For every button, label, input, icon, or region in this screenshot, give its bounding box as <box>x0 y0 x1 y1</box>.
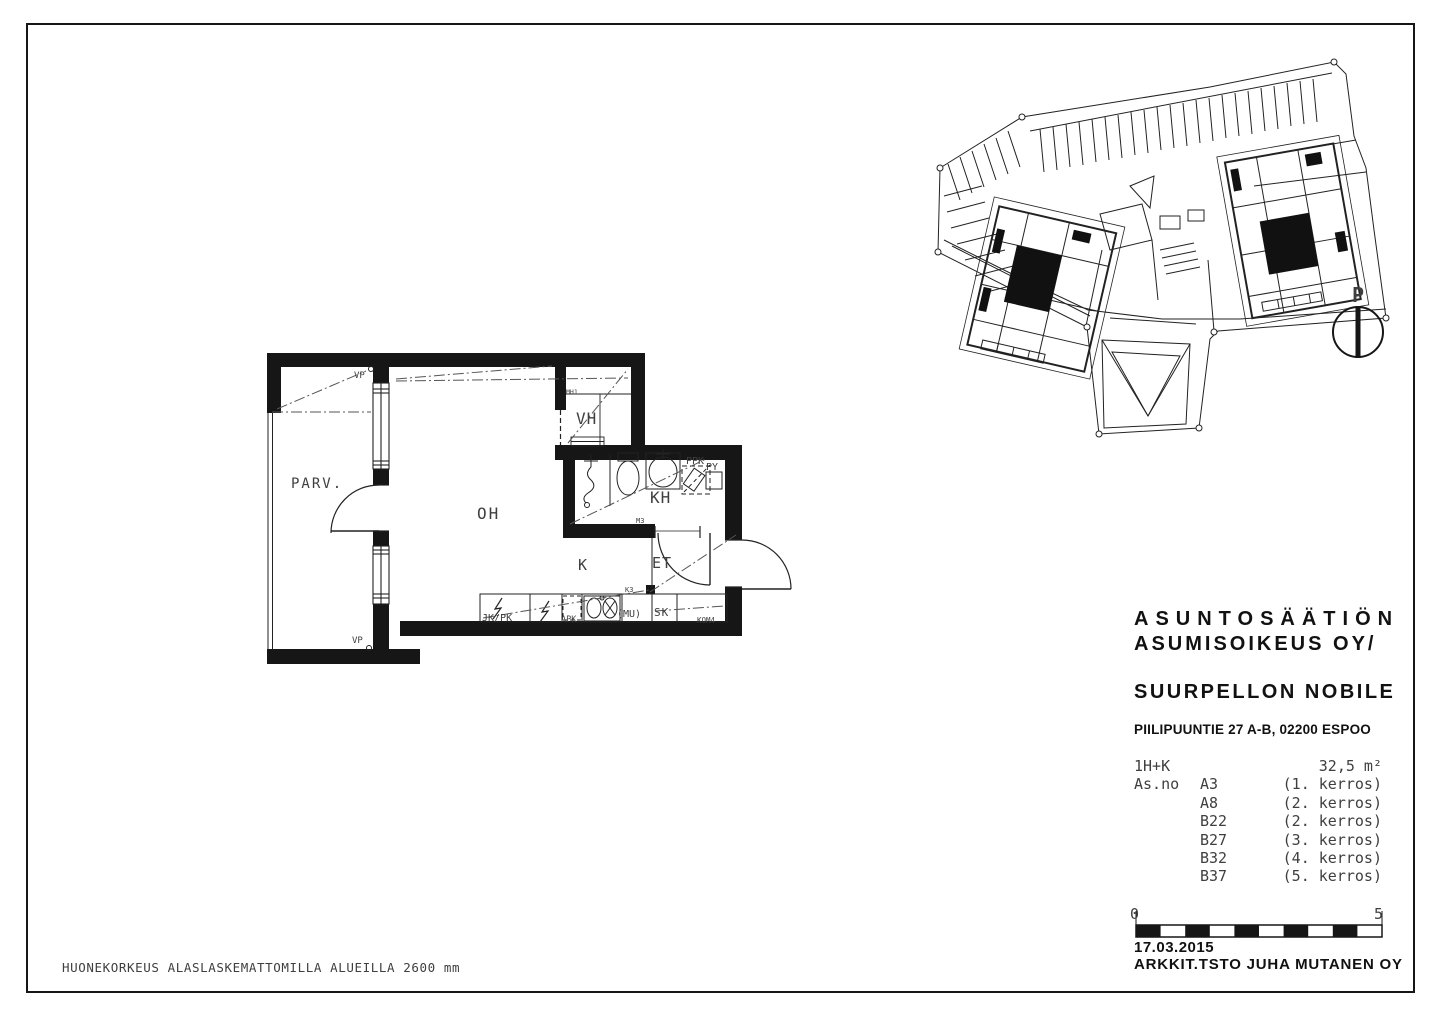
north-arrow: P <box>1333 283 1383 358</box>
floor-plan: PARV. OH VH KH K ET VP VP MH1 M3 K3 JK/P… <box>267 353 791 664</box>
unit-type-row: 1H+K 32,5 m² <box>1134 757 1382 775</box>
mark-apk: APK <box>561 615 577 625</box>
room-label-living: OH <box>477 504 500 523</box>
room-labels: PARV. OH VH KH K ET <box>291 409 672 574</box>
apartment-no: B32 <box>1200 849 1227 867</box>
mark-m3: M3 <box>636 517 644 525</box>
mark-mu: (MU) <box>617 609 641 620</box>
apartment-no: A8 <box>1200 794 1218 812</box>
apartment-floor: (2. kerros) <box>1283 794 1382 812</box>
apartment-no: B37 <box>1200 867 1227 885</box>
north-label: P <box>1352 283 1364 307</box>
apartment-floor: (4. kerros) <box>1283 849 1382 867</box>
apartment-row: A8 (2. kerros) <box>1134 794 1382 812</box>
ceiling-height-note: HUONEKORKEUS ALASLASKEMATTOMILLA ALUEILL… <box>62 960 460 975</box>
mark-vp-bottom: VP <box>352 636 363 646</box>
apartment-floor: (5. kerros) <box>1283 867 1382 885</box>
owner-line-2: ASUMISOIKEUS OY/ <box>1134 633 1376 656</box>
room-label-balcony: PARV. <box>291 476 343 492</box>
balcony-railing <box>268 413 273 650</box>
as-no-label: As.no <box>1134 775 1179 793</box>
door-symbols <box>331 410 791 589</box>
mark-sk: SK <box>654 606 669 619</box>
apartment-floor: (1. kerros) <box>1283 775 1382 793</box>
apartment-row: B22 (2. kerros) <box>1134 812 1382 830</box>
py-cabinet <box>706 472 722 489</box>
shower-icon <box>584 455 610 508</box>
mark-kom4: KOM4 <box>697 616 716 625</box>
site-plan <box>935 59 1389 437</box>
project-address: PIILIPUUNTIE 27 A-B, 02200 ESPOO <box>1134 722 1371 737</box>
room-label-entry: ET <box>652 554 672 572</box>
room-label-bathroom: KH <box>650 488 671 507</box>
owner-line-1: ASUNTOSÄÄTIÖN <box>1134 608 1399 631</box>
kitchen-counter <box>480 594 727 622</box>
drawing-sheet: P <box>0 0 1440 1017</box>
survey-points <box>935 59 1389 437</box>
mark-vp-top: VP <box>354 371 365 381</box>
unit-area: 32,5 m² <box>1319 757 1382 775</box>
scale-end-label: 5 <box>1374 905 1383 923</box>
apartment-no: A3 <box>1200 775 1218 793</box>
architect-name: ARKKIT.TSTO JUHA MUTANEN OY <box>1134 956 1403 973</box>
scale-start-label: 0 <box>1130 905 1139 923</box>
mark-ppk: PPK <box>686 456 704 467</box>
apartment-list: 1H+K 32,5 m² As.no A3 (1. kerros) A8 (2.… <box>1134 757 1382 886</box>
site-building-a <box>959 197 1125 379</box>
code-labels: VP VP MH1 M3 K3 JK/PK APK (MU) SK KOM4 P… <box>352 371 718 646</box>
unit-type: 1H+K <box>1134 757 1170 775</box>
site-lower-court <box>1102 340 1190 428</box>
window-symbols <box>373 383 389 604</box>
mark-k3: K3 <box>625 586 633 594</box>
room-label-kitchen: K <box>578 556 587 574</box>
apartment-floor: (3. kerros) <box>1283 831 1382 849</box>
apartment-no: B27 <box>1200 831 1227 849</box>
apartment-row: B32 (4. kerros) <box>1134 849 1382 867</box>
kitchen-sink-icon <box>584 596 620 621</box>
apartment-row: As.no A3 (1. kerros) <box>1134 775 1382 793</box>
apartment-row: B27 (3. kerros) <box>1134 831 1382 849</box>
apartment-row: B37 (5. kerros) <box>1134 867 1382 885</box>
room-label-closet: VH <box>576 409 597 428</box>
mark-jkpk: JK/PK <box>482 613 512 624</box>
scale-bar: 0 5 <box>1130 905 1383 937</box>
parking-ticks <box>1040 79 1317 172</box>
mark-py: PY <box>706 462 718 473</box>
apartment-floor: (2. kerros) <box>1283 812 1382 830</box>
apartment-no: B22 <box>1200 812 1227 830</box>
site-building-b <box>1217 135 1369 326</box>
site-courtyard <box>1086 176 1214 331</box>
site-boundary <box>938 62 1386 434</box>
drawing-date: 17.03.2015 <box>1134 939 1214 956</box>
project-name: SUURPELLON NOBILE <box>1134 681 1395 704</box>
mark-mh1: MH1 <box>566 388 578 396</box>
